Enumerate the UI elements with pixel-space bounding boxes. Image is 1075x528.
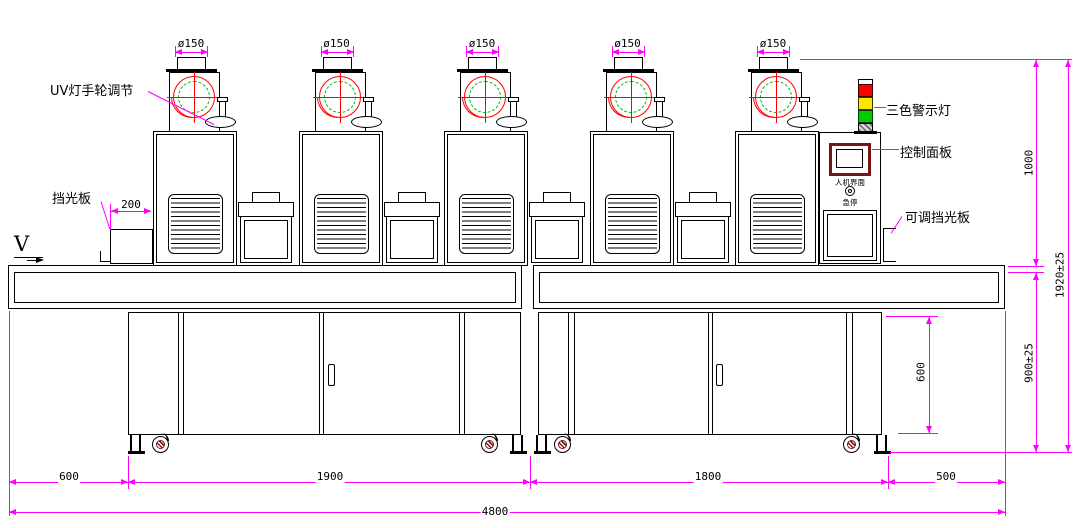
duct-flange	[603, 69, 654, 72]
uv-lamp-unit: ø150	[153, 0, 237, 266]
shield-unit-body-inner	[244, 220, 288, 259]
uv-handwheel-label: UV灯手轮调节	[50, 80, 133, 99]
dim-arrow	[926, 317, 932, 324]
inter-shield-unit	[384, 0, 440, 264]
uv-machine-elevation-drawing: ø150 ø150	[0, 0, 1075, 528]
fan-crosshair-h	[749, 97, 805, 98]
duct-diameter-dim: ø150	[177, 37, 206, 50]
extension-lower-box-inner	[827, 214, 873, 257]
direction-label: V	[14, 232, 29, 256]
shield-unit-lid	[529, 202, 585, 217]
estop-button-inner	[848, 189, 852, 193]
dim-arrow	[998, 479, 1005, 485]
duct-flange	[748, 69, 799, 72]
dim-shield-offset: 200	[120, 198, 142, 211]
dim-arrow	[111, 208, 118, 214]
estop-button[interactable]	[845, 186, 855, 196]
fan-crosshair-h	[313, 97, 369, 98]
louver-slats	[608, 198, 657, 250]
shield-unit-body-inner	[390, 220, 434, 259]
fan-crosshair-h	[458, 97, 514, 98]
duct-diameter-dim: ø150	[322, 37, 351, 50]
dim-overall-height: 1920±25	[1054, 252, 1067, 298]
warning-light-base-plate	[854, 131, 877, 134]
uv-lamp-unit: ø150	[590, 0, 674, 266]
dim-arrow	[881, 479, 888, 485]
louver-slats	[462, 198, 511, 250]
duct-flange	[312, 69, 363, 72]
tricolor-light-label: 三色警示灯	[886, 100, 951, 119]
duct-diameter-dim: ø150	[468, 37, 497, 50]
inter-shield-unit	[675, 0, 731, 264]
vent-louver-icon	[605, 194, 660, 254]
handwheel-disc	[642, 116, 673, 128]
warning-light-yellow	[858, 97, 873, 110]
tricolor-warning-light	[857, 79, 874, 135]
fan-crosshair-v	[776, 71, 777, 123]
shield-unit-body-inner	[681, 220, 725, 259]
dim-overall-length: 4800	[481, 505, 510, 518]
inter-shield-unit	[529, 0, 585, 264]
dim-left-overhang: 600	[58, 470, 80, 483]
duct-flange	[457, 69, 508, 72]
handwheel-disc	[496, 116, 527, 128]
dim-arrow	[121, 479, 128, 485]
dim-module-left-width: 1900	[316, 470, 345, 483]
dim-arrow	[1033, 445, 1039, 452]
duct-diameter-dim: ø150	[759, 37, 788, 50]
dim-line-900	[1036, 273, 1037, 452]
dim-arrow	[1065, 60, 1071, 67]
dim-arrow	[926, 426, 932, 433]
handwheel-disc	[351, 116, 382, 128]
vent-louver-icon	[168, 194, 223, 254]
vent-louver-icon	[459, 194, 514, 254]
adjustable-shield-bracket	[883, 261, 896, 262]
dim-line-row1	[9, 482, 1005, 483]
uv-lamp-unit: ø150	[735, 0, 819, 266]
inter-shield-unit	[238, 0, 294, 264]
handwheel-disc	[787, 116, 818, 128]
fan-crosshair-h	[167, 97, 223, 98]
adjustable-shield-bracket	[883, 228, 884, 262]
shield-unit-lid	[238, 202, 294, 217]
dim-base-cabinet-height: 600	[915, 362, 928, 382]
duct-diameter-dim: ø150	[613, 37, 642, 50]
direction-arrow-head	[36, 257, 44, 263]
units-layer: ø150 ø150	[0, 0, 1075, 528]
louver-slats	[317, 198, 366, 250]
vent-louver-icon	[314, 194, 369, 254]
louver-slats	[753, 198, 802, 250]
dim-arrow	[144, 208, 151, 214]
hmi-screen[interactable]	[829, 143, 871, 176]
warning-light-red	[858, 84, 873, 97]
dim-arrow	[9, 479, 16, 485]
dim-arrow	[9, 509, 16, 515]
control-panel-label: 控制面板	[900, 142, 952, 161]
leader-line	[874, 107, 886, 108]
estop-label: 急停	[843, 197, 858, 208]
dim-arrow	[998, 509, 1005, 515]
dim-lamp-section-height: 1000	[1023, 150, 1036, 177]
dim-arrow	[1033, 60, 1039, 67]
warning-light-green	[858, 110, 873, 123]
uv-lamp-unit: ø150	[444, 0, 528, 266]
dim-arrow	[530, 479, 537, 485]
shield-unit-body-inner	[535, 220, 579, 259]
vent-louver-icon	[750, 194, 805, 254]
shield-unit-lid	[384, 202, 440, 217]
dim-line-600v	[929, 317, 930, 433]
shield-label: 挡光板	[52, 188, 91, 207]
duct-flange	[166, 69, 217, 72]
dim-ext-line	[1005, 311, 1006, 516]
fan-crosshair-v	[631, 71, 632, 123]
dim-ext-line	[898, 433, 938, 434]
adjustable-shield-label: 可调挡光板	[905, 207, 970, 226]
louver-slats	[171, 198, 220, 250]
dim-arrow	[1065, 445, 1071, 452]
dim-module-right-width: 1800	[694, 470, 723, 483]
dim-arrow	[128, 479, 135, 485]
shield-plate-left	[110, 229, 153, 264]
shield-unit-lid	[675, 202, 731, 217]
dim-right-overhang: 500	[935, 470, 957, 483]
dim-ext-line	[890, 452, 1072, 453]
hmi-screen-inner	[836, 149, 863, 168]
dim-line-1920	[1068, 60, 1069, 452]
dim-arrow	[1033, 273, 1039, 280]
fan-crosshair-h	[604, 97, 660, 98]
dim-line-1000	[1036, 60, 1037, 266]
leader-line	[872, 149, 899, 150]
fan-crosshair-v	[340, 71, 341, 123]
fan-crosshair-v	[485, 71, 486, 123]
shield-bracket	[100, 261, 111, 262]
dim-arrow	[523, 479, 530, 485]
dim-arrow	[1033, 259, 1039, 266]
dim-arrow	[888, 479, 895, 485]
dim-ext-line	[800, 59, 1072, 60]
dim-ext-line	[1008, 266, 1044, 267]
uv-lamp-unit: ø150	[299, 0, 383, 266]
dim-ext-line	[9, 311, 10, 516]
dim-belt-height: 900±25	[1023, 343, 1036, 383]
